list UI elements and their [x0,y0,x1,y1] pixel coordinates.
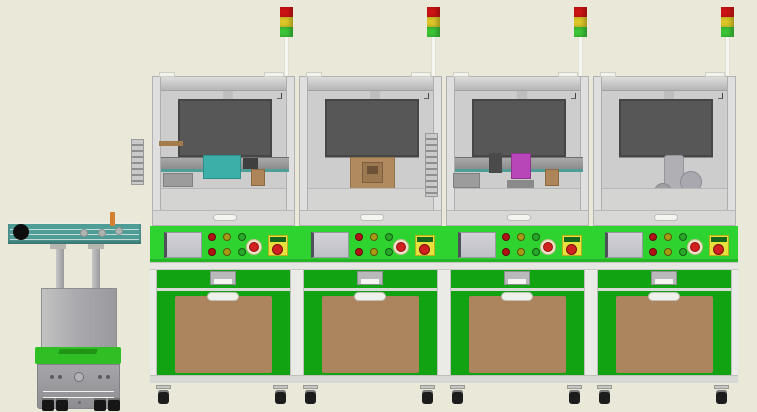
panel-button-yellow [223,233,231,241]
panel-button-yellow [370,248,378,256]
cabinet-divider [598,288,731,291]
drawer-handle [651,271,677,285]
cabinet-divider [451,288,584,291]
stack-light-icon [721,7,734,37]
axis-triad-marker [718,93,723,99]
caster-wheel [302,385,319,405]
cabinet-divider [304,288,437,291]
station-1 [150,0,297,412]
emergency-stop-mushroom [713,244,724,255]
caster-wheel [155,385,172,405]
caster-plate [303,385,318,389]
cabinet-post [437,270,444,383]
drawer-handle [504,271,530,285]
cabinet-divider [157,288,290,291]
cabinet-door-handle [501,292,533,301]
caster-tire [158,390,169,404]
stack-light-pole [432,37,435,77]
drawer-handle-face [655,279,673,284]
side-rack [425,133,438,197]
conveyor-roller [115,227,123,235]
stack-light-green-segment [280,27,293,37]
side-rack [131,139,144,185]
emergency-stop-button [687,239,703,255]
rail-stripe [10,239,139,240]
panel-button-green [679,248,687,256]
enclosure-door-handle [507,214,531,221]
emergency-stop-mushroom [272,244,283,255]
enclosure-door-handle [654,214,678,221]
monitor-screen [325,99,419,157]
enclosure-top-beam [447,77,588,91]
control-box [163,173,193,187]
cabinet-door-panel [175,296,272,373]
conveyor-roller [98,229,106,237]
machine-enclosure [299,76,442,226]
tooling-block [243,158,258,169]
emergency-stop-mushroom [419,244,430,255]
gripper-module [511,153,531,179]
caster-wheel [713,385,730,405]
control-panel [150,226,297,262]
enclosure-door-handle [213,214,237,221]
panel-button-yellow [517,233,525,241]
caster-plate [156,385,171,389]
emergency-stop-mushroom [249,242,259,252]
panel-button-red [208,233,216,241]
caster-tire [422,390,433,404]
support-post [56,249,64,288]
stack-light-green-segment [721,27,734,37]
cabinet-post [731,270,738,383]
agv-wheel [94,398,106,411]
panel-button-yellow [223,248,231,256]
panel-button-red [649,248,657,256]
enclosure-top-beam [594,77,735,91]
emergency-stop-button [393,239,409,255]
hmi-screen [164,232,202,258]
stack-light-red-segment [721,7,734,17]
conveyor-pulley [13,224,29,240]
frame-mid-strip [297,262,444,270]
caster-wheel [596,385,613,405]
stack-light-yellow-segment [721,17,734,27]
agv-green-band [35,347,121,364]
machine-enclosure [446,76,589,226]
station-3 [444,0,591,412]
cabinet-door-handle [354,292,386,301]
monitor-screen [178,99,272,157]
base-cabinet [297,270,444,383]
cabinet-bottom-rail [297,375,444,383]
panel-button-red [649,233,657,241]
cabinet-post [584,270,591,383]
drawer-handle [357,271,383,285]
stack-light-green-segment [574,27,587,37]
panel-button-red [355,233,363,241]
agv-indicator-dot [106,375,110,379]
caster-wheel [566,385,583,405]
frame-mid-strip [591,262,738,270]
cabinet-bottom-rail [150,375,297,383]
enclosure-top-beam [153,77,294,91]
stack-light-red-segment [427,7,440,17]
agv-wheel [42,398,54,411]
stack-light-yellow-segment [280,17,293,27]
caster-wheel [449,385,466,405]
agv-seam-line [43,391,114,392]
caster-wheel [272,385,289,405]
cabinet-door-handle [207,292,239,301]
station-4 [591,0,738,412]
stack-light-icon [574,7,587,37]
cad-viewport[interactable] [0,0,757,412]
hmi-screen [311,232,349,258]
panel-button-red [208,248,216,256]
station-2 [297,0,444,412]
emergency-stop-mushroom [566,244,577,255]
monitor-screen [472,99,566,157]
emergency-stop-box [709,235,729,256]
agv-band-detail [58,349,98,354]
agv-center-knob [74,372,84,382]
control-panel [591,226,738,262]
stack-light-yellow-segment [427,17,440,27]
caster-tire [305,390,316,404]
base-cabinet [444,270,591,383]
base-cabinet [591,270,738,383]
caster-plate [567,385,582,389]
conveyor-sensor-flag [110,212,115,226]
cabinet-post [444,270,451,383]
drawer-handle-face [214,279,232,284]
side-shelf [159,141,183,146]
machine-enclosure [593,76,736,226]
estop-box-label-bar [711,237,727,242]
cabinet-door-panel [616,296,713,373]
stack-light-pole [726,37,729,77]
stack-light-red-segment [574,7,587,17]
bench-surface [161,189,286,212]
drawer-handle [210,271,236,285]
enclosure-post [153,77,161,225]
caster-plate [714,385,729,389]
stack-light-icon [427,7,440,37]
enclosure-post [580,77,588,225]
estop-box-label-bar [564,237,580,242]
bench-surface [602,189,727,212]
tooling-block [489,153,502,173]
material-box [545,169,559,186]
hmi-screen [458,232,496,258]
panel-button-red [502,248,510,256]
stack-light-yellow-segment [574,17,587,27]
bench-surface [308,189,433,212]
panel-button-yellow [664,248,672,256]
agv-wheel [108,398,120,411]
support-post [92,249,100,288]
agv-indicator-dot [98,375,102,379]
frame-mid-strip [150,262,297,270]
stack-light-pole [579,37,582,77]
enclosure-post [727,77,735,225]
emergency-stop-button [246,239,262,255]
enclosure-post [286,77,294,225]
cabinet-door-panel [469,296,566,373]
panel-button-yellow [664,233,672,241]
agv-cart [0,210,152,412]
bench-surface [455,189,580,212]
cabinet-door-panel [322,296,419,373]
emergency-stop-button [540,239,556,255]
conveyor-roller [80,229,88,237]
enclosure-post [300,77,308,225]
caster-plate [597,385,612,389]
cabinet-bottom-rail [591,375,738,383]
stack-light-pole [285,37,288,77]
emergency-stop-mushroom [396,242,406,252]
enclosure-post [447,77,455,225]
caster-plate [273,385,288,389]
pallet-carrier [203,155,241,179]
hmi-screen [605,232,643,258]
enclosure-top-beam [300,77,441,91]
emergency-stop-mushroom [543,242,553,252]
emergency-stop-box [562,235,582,256]
panel-button-yellow [517,248,525,256]
control-panel [444,226,591,262]
panel-button-green [238,248,246,256]
base-cabinet [150,270,297,383]
caster-tire [275,390,286,404]
panel-button-green [238,233,246,241]
cabinet-bottom-rail [444,375,591,383]
caster-wheel [419,385,436,405]
stack-light-red-segment [280,7,293,17]
caster-tire [716,390,727,404]
panel-button-green [385,248,393,256]
panel-button-red [502,233,510,241]
stack-light-green-segment [427,27,440,37]
panel-button-red [355,248,363,256]
agv-indicator-dot [50,375,54,379]
caster-plate [450,385,465,389]
axis-triad-marker [571,93,576,99]
control-panel [297,226,444,262]
cabinet-door-handle [648,292,680,301]
emergency-stop-box [268,235,288,256]
machine-enclosure [152,76,295,226]
estop-box-label-bar [417,237,433,242]
agv-indicator-dot [78,401,81,404]
estop-box-label-bar [270,237,286,242]
agv-indicator-dot [58,375,62,379]
enclosure-post [594,77,602,225]
caster-plate [420,385,435,389]
drawer-handle-face [361,279,379,284]
control-box [453,173,480,188]
agv-wheel [56,398,68,411]
enclosure-door-handle [360,214,384,221]
axis-triad-marker [424,93,429,99]
panel-button-green [679,233,687,241]
monitor-screen [619,99,713,157]
panel-button-yellow [370,233,378,241]
cabinet-post [150,270,157,383]
fixture-head [367,166,378,174]
caster-tire [452,390,463,404]
drawer-handle-face [508,279,526,284]
material-box [251,169,265,186]
caster-tire [569,390,580,404]
panel-button-green [532,248,540,256]
under-fixture [507,180,534,188]
agv-upper-housing [41,288,117,348]
emergency-stop-box [415,235,435,256]
cabinet-post [290,270,297,383]
caster-tire [599,390,610,404]
emergency-stop-mushroom [690,242,700,252]
panel-button-green [532,233,540,241]
panel-button-green [385,233,393,241]
cabinet-post [591,270,598,383]
axis-triad-marker [277,93,282,99]
frame-mid-strip [444,262,591,270]
cabinet-post [297,270,304,383]
stack-light-icon [280,7,293,37]
